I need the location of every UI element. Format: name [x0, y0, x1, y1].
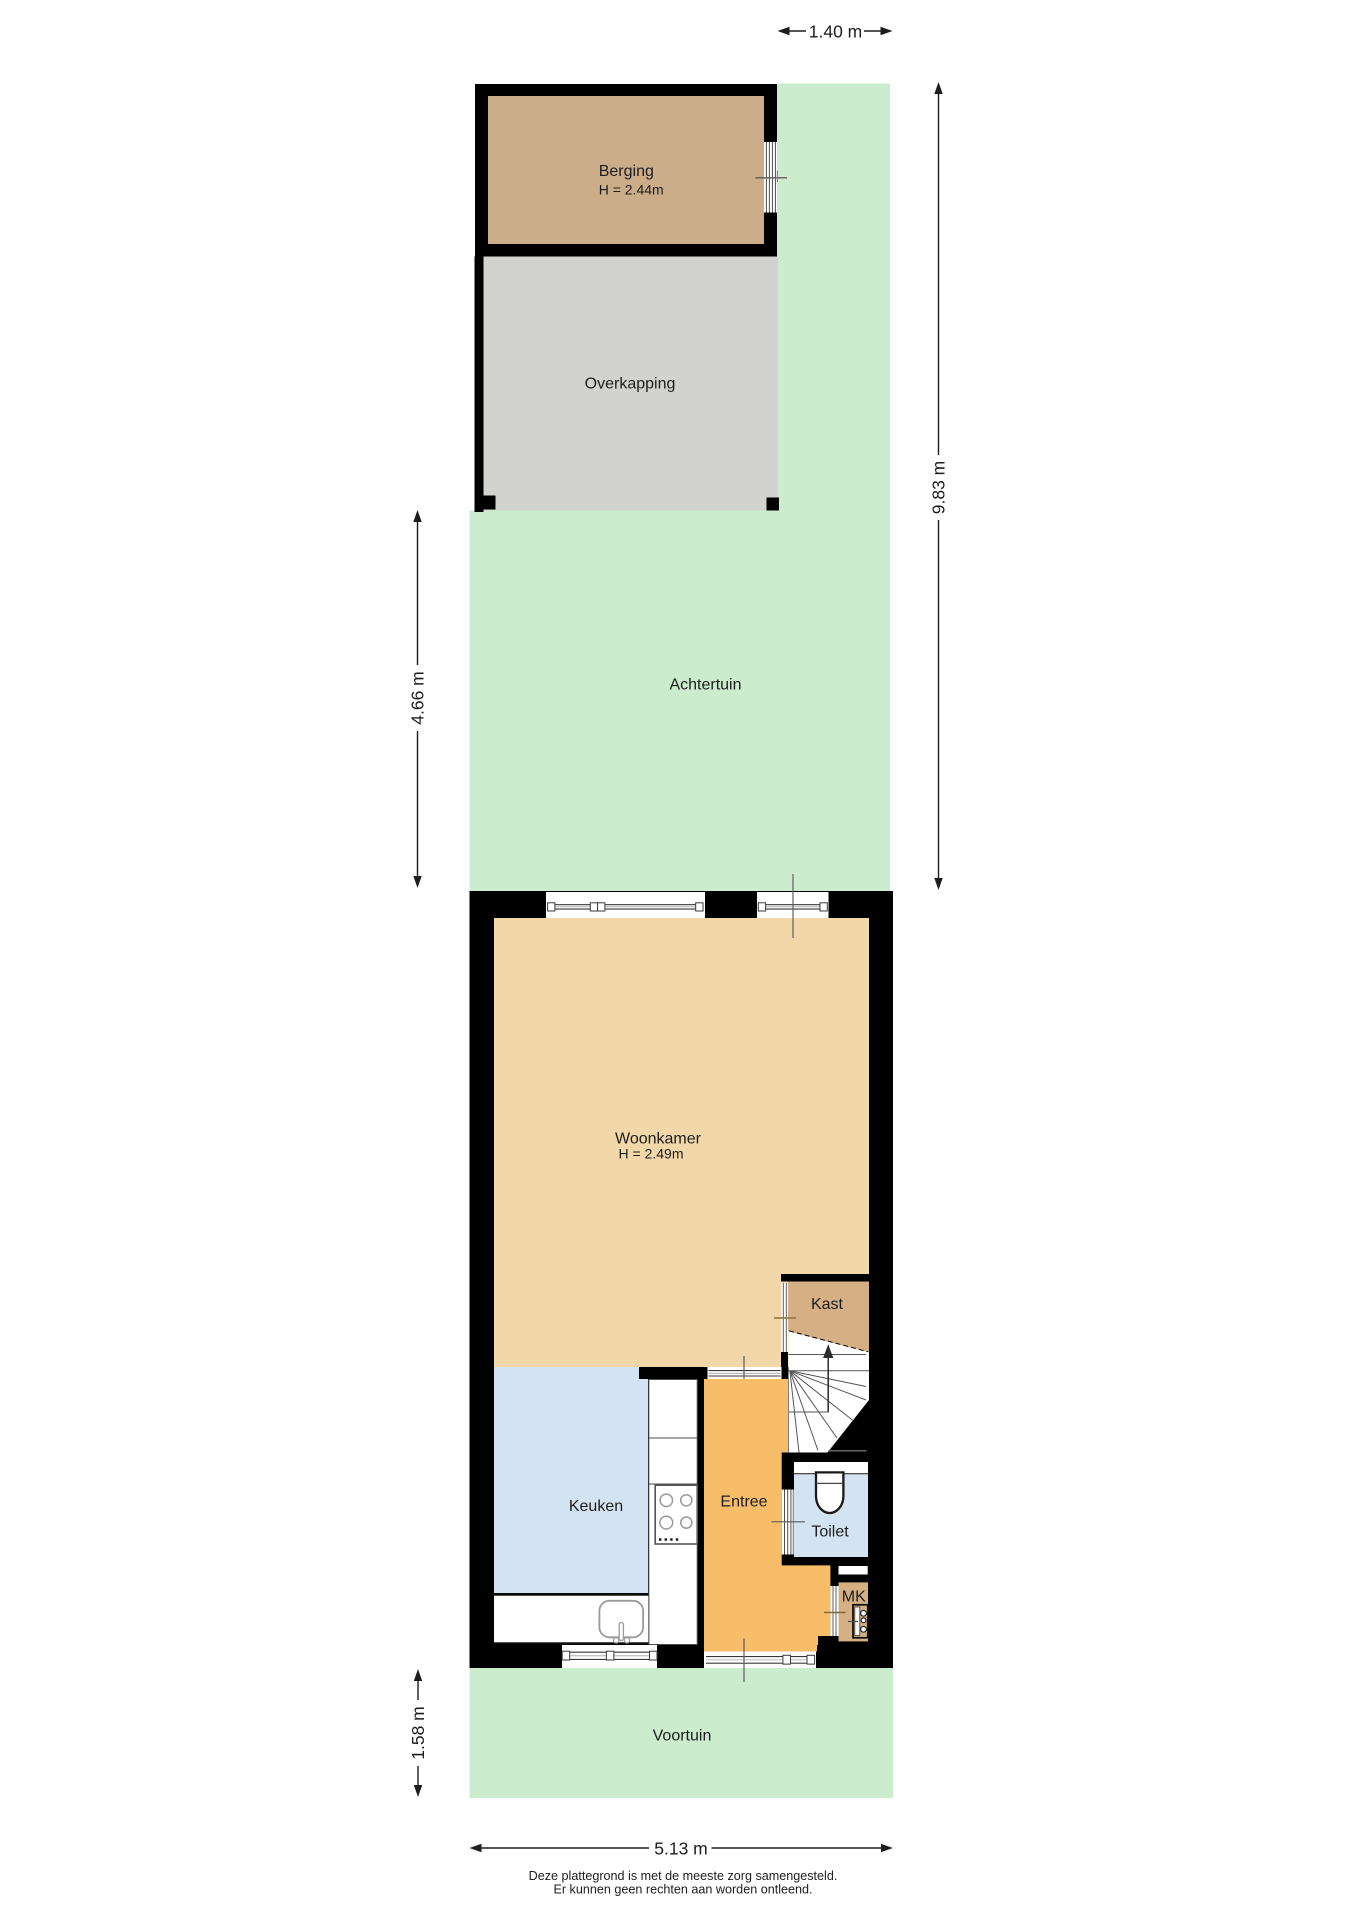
svg-text:4.66 m: 4.66 m	[408, 671, 428, 725]
svg-text:Keuken: Keuken	[569, 1498, 623, 1515]
svg-text:1.58 m: 1.58 m	[408, 1706, 428, 1760]
svg-text:1.40 m: 1.40 m	[809, 21, 863, 41]
svg-text:5.13 m: 5.13 m	[654, 1838, 708, 1858]
svg-text:H = 2.49m: H = 2.49m	[619, 1146, 684, 1162]
svg-text:Er kunnen geen rechten aan wor: Er kunnen geen rechten aan worden ontlee…	[553, 1882, 812, 1896]
svg-text:Entree: Entree	[720, 1494, 767, 1511]
svg-text:Kast: Kast	[811, 1296, 844, 1313]
svg-text:Toilet: Toilet	[811, 1524, 849, 1541]
svg-text:H = 2.44m: H = 2.44m	[599, 182, 664, 198]
svg-text:MK: MK	[842, 1589, 866, 1606]
svg-text:Deze plattegrond is met de mee: Deze plattegrond is met de meeste zorg s…	[529, 1869, 838, 1883]
svg-text:Achtertuin: Achtertuin	[669, 677, 741, 694]
svg-text:Berging: Berging	[599, 163, 654, 180]
svg-text:Voortuin: Voortuin	[653, 1728, 712, 1745]
svg-text:9.83 m: 9.83 m	[929, 461, 949, 515]
svg-text:Overkapping: Overkapping	[585, 376, 676, 393]
